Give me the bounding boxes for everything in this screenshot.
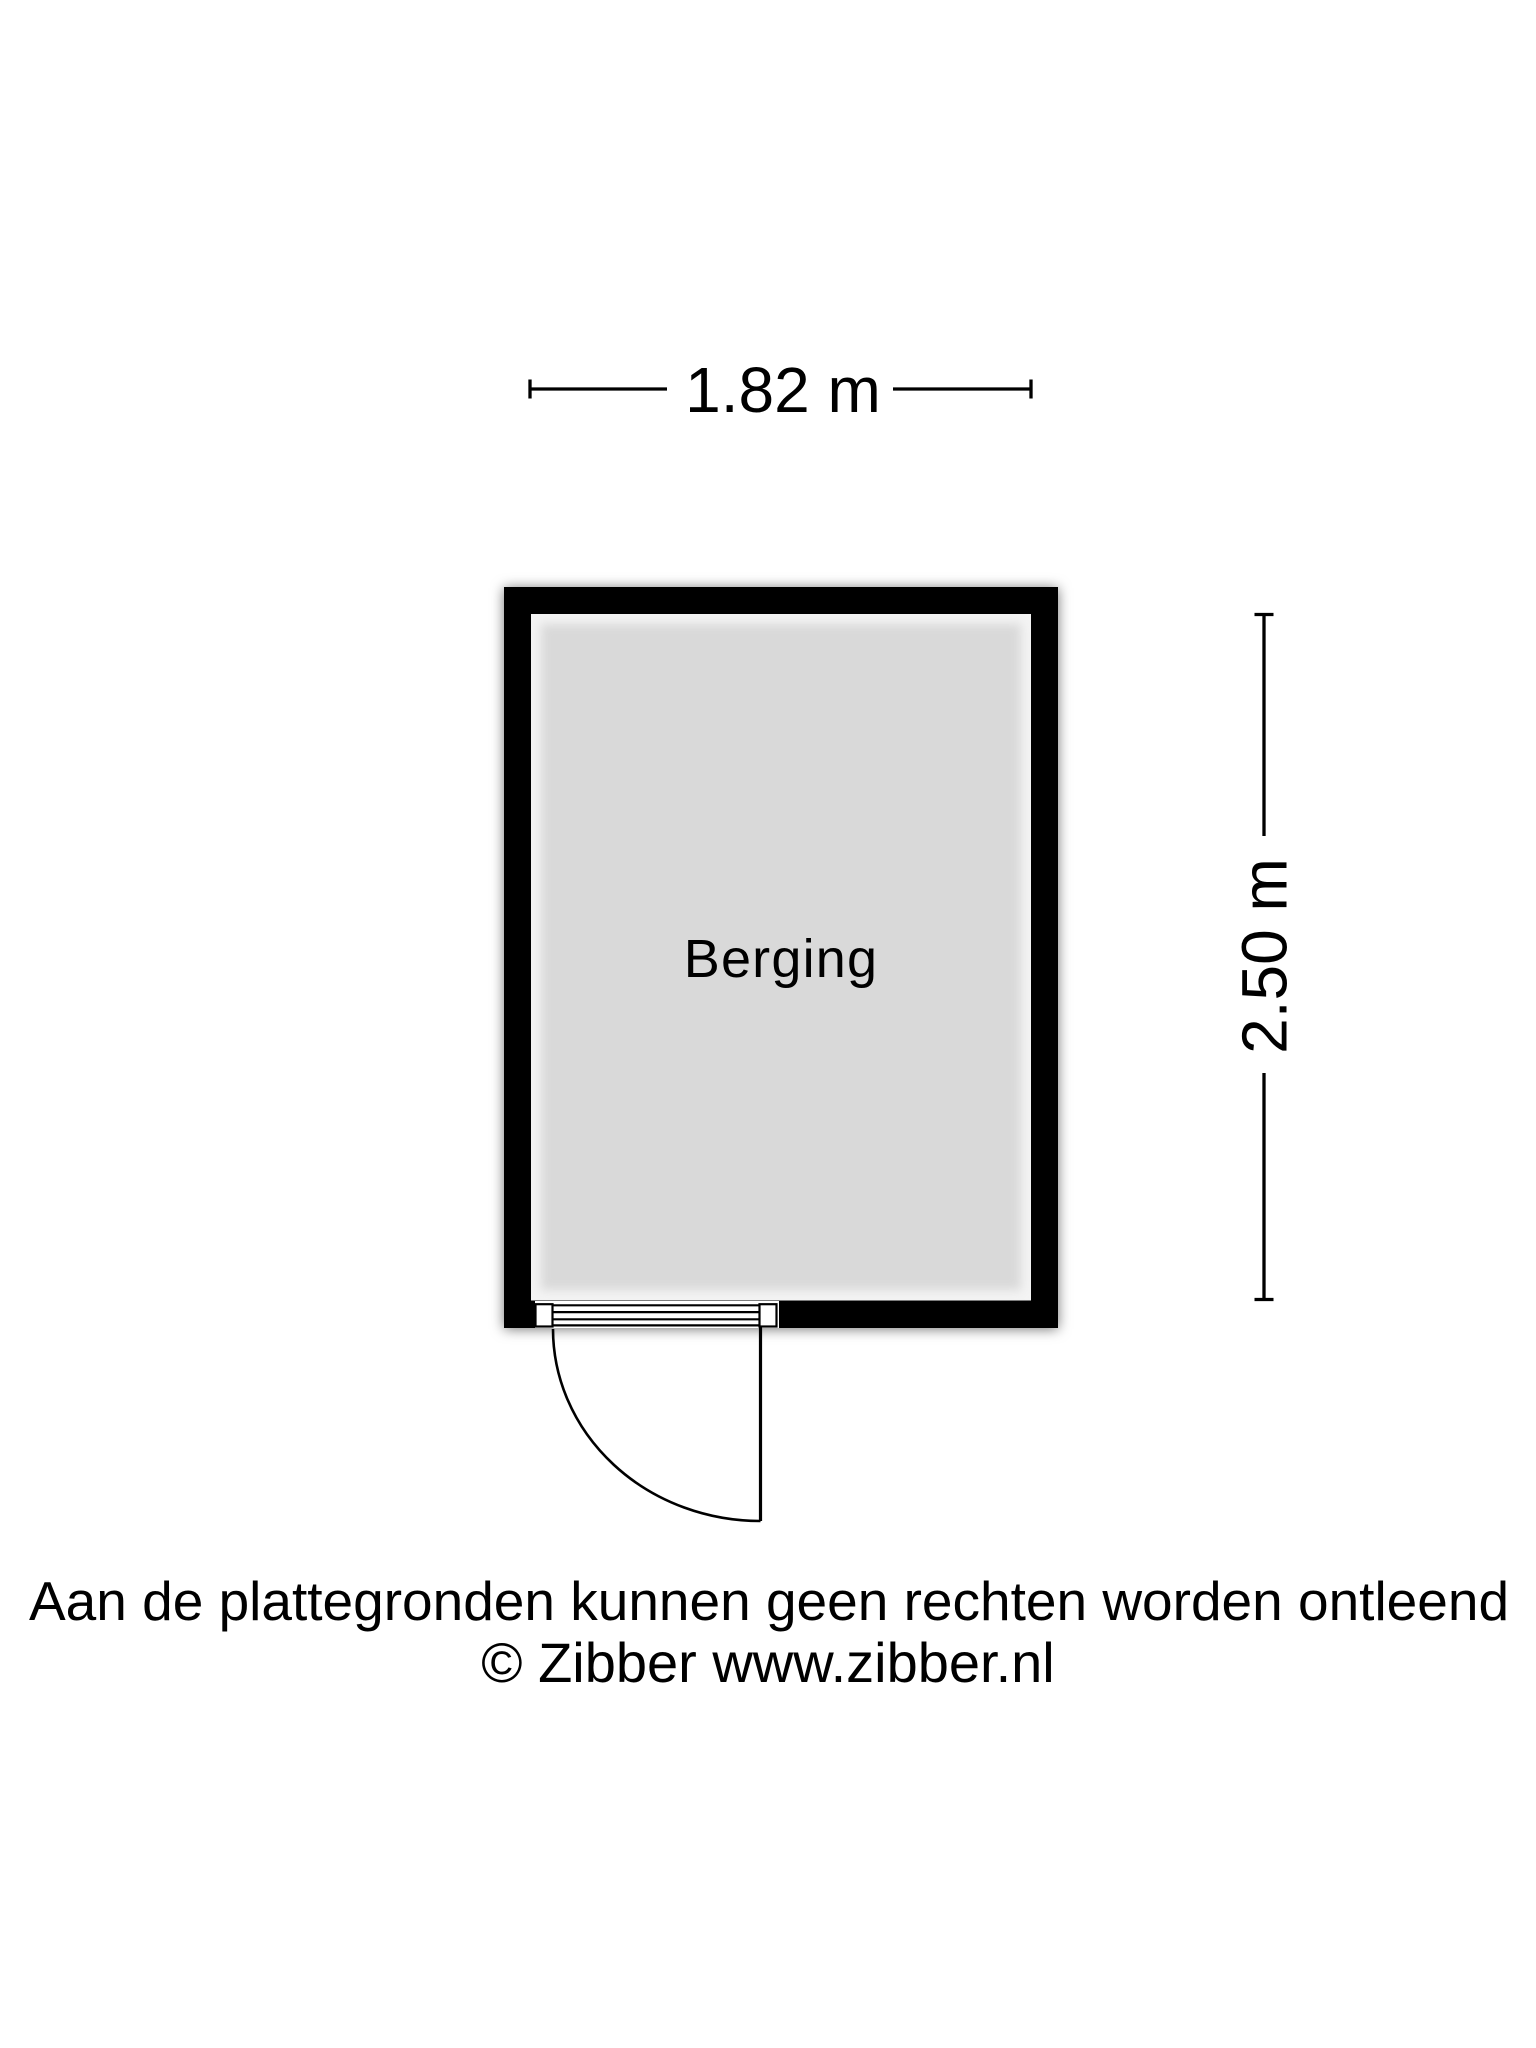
svg-text:© Zibber www.zibber.nl: © Zibber www.zibber.nl bbox=[481, 1631, 1054, 1694]
svg-text:2.50 m: 2.50 m bbox=[1229, 858, 1301, 1054]
svg-text:Aan de plattegronden kunnen ge: Aan de plattegronden kunnen geen rechten… bbox=[29, 1570, 1509, 1632]
svg-text:1.82 m: 1.82 m bbox=[685, 354, 881, 426]
svg-text:Berging: Berging bbox=[684, 929, 879, 989]
